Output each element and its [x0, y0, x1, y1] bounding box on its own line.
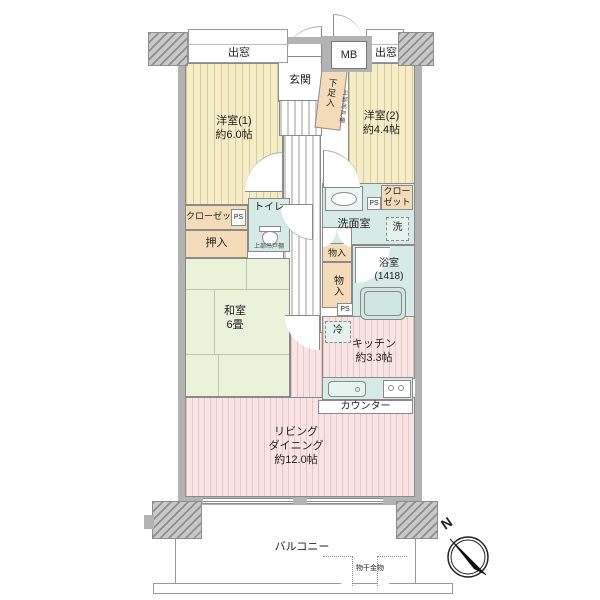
- tatami-line: [218, 355, 219, 396]
- pillar-top-left: [148, 32, 188, 66]
- pillar-top-right: [398, 32, 434, 66]
- floor-plan: 出窓 出窓 MB 玄関 下足入 上部吊戸棚 洋室(1) 約6.0帖 洋室(2) …: [0, 0, 600, 600]
- balcony-slab: [153, 583, 453, 594]
- storage-lower-label: 物入: [330, 268, 343, 304]
- pillar-bottom-right: [396, 501, 438, 539]
- laundry-door-arc: [323, 556, 353, 586]
- pillar-tab: [144, 515, 154, 529]
- entrance-label: 玄関: [280, 74, 320, 88]
- bathroom-label: 浴室 (1418): [365, 258, 413, 283]
- washroom-label: 洗面室: [330, 218, 378, 232]
- balcony-side-right: [415, 539, 416, 584]
- closet-left-label: クローゼット: [186, 211, 232, 222]
- ps-box: PS: [367, 197, 381, 210]
- balcony-side-left: [175, 539, 176, 584]
- closet-right-label: クロー ゼット: [381, 186, 413, 209]
- tatami-line: [186, 354, 289, 355]
- north-compass-icon: N: [436, 513, 496, 585]
- meter-box: MB: [331, 41, 367, 69]
- laundry-fitting-label: 物干金物: [352, 565, 388, 574]
- oshiire-label: 押入: [185, 237, 248, 251]
- bay-window-left: 出窓: [188, 29, 288, 63]
- washbasin-icon: [325, 186, 363, 211]
- bay-window-left-label: 出窓: [189, 47, 289, 61]
- kitchen-label: キッチン 約3.3帖: [338, 338, 410, 366]
- kitchen-sink-icon: [328, 381, 366, 397]
- bathtub-icon: [360, 287, 406, 320]
- window-living-left: [203, 498, 293, 504]
- stove-icon: [383, 380, 411, 398]
- wall-left: [178, 37, 185, 505]
- western2-label: 洋室(2) 約4.4帖: [348, 110, 415, 138]
- toilet-upper-cabinet-label: 上部吊戸棚: [246, 244, 292, 251]
- ps-box: PS: [337, 303, 353, 316]
- washer-label: 洗: [386, 222, 409, 235]
- toilet-label: トイレ: [248, 202, 290, 215]
- wall-right: [415, 37, 422, 505]
- tatami-line: [186, 289, 289, 290]
- window-living-right: [307, 498, 383, 504]
- ps-box: PS: [231, 209, 246, 226]
- balcony-label: バルコニー: [272, 541, 332, 555]
- counter-label: カウンター: [318, 401, 413, 414]
- western1-label: 洋室(1) 約6.0帖: [185, 115, 283, 143]
- tatami-line: [246, 259, 247, 289]
- storage-upper-label: 物入: [322, 248, 352, 259]
- fridge-label: 冷: [325, 325, 351, 338]
- living-dining-label: リビング ダイニング 約12.0帖: [248, 426, 344, 467]
- pillar-bottom-left: [152, 501, 202, 539]
- japanese-room-label: 和室 6畳: [195, 305, 275, 333]
